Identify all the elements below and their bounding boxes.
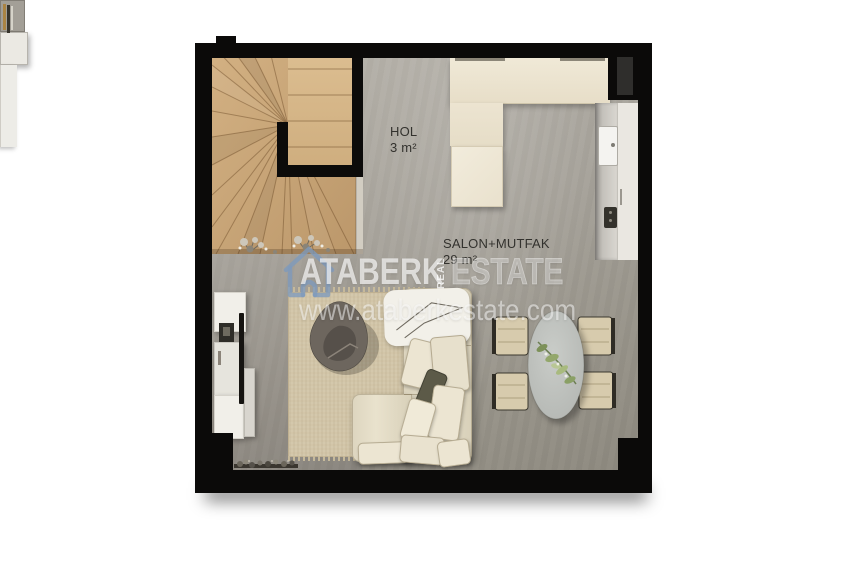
kitchen-right-cabinet bbox=[617, 103, 639, 260]
tv-screen bbox=[239, 313, 244, 404]
counter-wall-gap bbox=[455, 58, 505, 61]
dining-chair bbox=[495, 317, 528, 355]
room-label-hol: HOL 3 m² bbox=[390, 124, 417, 156]
cooktop bbox=[604, 207, 617, 228]
sofa-pillow bbox=[436, 438, 471, 468]
kitchen-island-block bbox=[451, 146, 503, 207]
console-vase bbox=[7, 5, 10, 33]
sink bbox=[598, 126, 618, 166]
console-vase bbox=[3, 4, 6, 30]
wall-left bbox=[195, 43, 212, 470]
kitchen-counter-left-arm bbox=[450, 103, 503, 146]
side-table bbox=[0, 32, 28, 65]
cooktop-knob bbox=[609, 219, 612, 222]
media-device-detail bbox=[223, 327, 230, 336]
wall-bottom bbox=[195, 470, 652, 493]
wall-top-step bbox=[216, 36, 236, 46]
coffee-table bbox=[298, 296, 388, 384]
kitchen-counter-top bbox=[450, 58, 610, 104]
wall-left-bottom-block bbox=[212, 433, 233, 470]
room-area: 3 m² bbox=[390, 140, 417, 156]
cabinet-handle bbox=[620, 189, 622, 205]
floor-plan: HOL 3 m² SALON+MUTFAK 29 m² ATABERK REAL… bbox=[0, 0, 850, 566]
cooktop-knob bbox=[609, 211, 612, 214]
stair-base-plant-decor bbox=[220, 234, 345, 260]
winder-staircase bbox=[212, 43, 363, 254]
faucet bbox=[611, 143, 615, 147]
wall-console bbox=[0, 65, 17, 147]
wall-top bbox=[195, 43, 652, 58]
counter-wall-gap bbox=[560, 58, 605, 61]
cabinet-handle bbox=[218, 351, 221, 365]
dining-chair bbox=[495, 373, 528, 410]
dining-set bbox=[478, 298, 648, 432]
tv-side-panel bbox=[244, 368, 255, 437]
media-device bbox=[219, 323, 234, 342]
room-name: SALON+MUTFAK bbox=[443, 236, 550, 252]
room-name: HOL bbox=[390, 124, 417, 140]
wall-right bbox=[638, 43, 652, 440]
room-area: 29 m² bbox=[443, 252, 550, 268]
room-label-salon-mutfak: SALON+MUTFAK 29 m² bbox=[443, 236, 550, 268]
console-vase bbox=[11, 6, 13, 30]
door-recess bbox=[617, 57, 633, 95]
